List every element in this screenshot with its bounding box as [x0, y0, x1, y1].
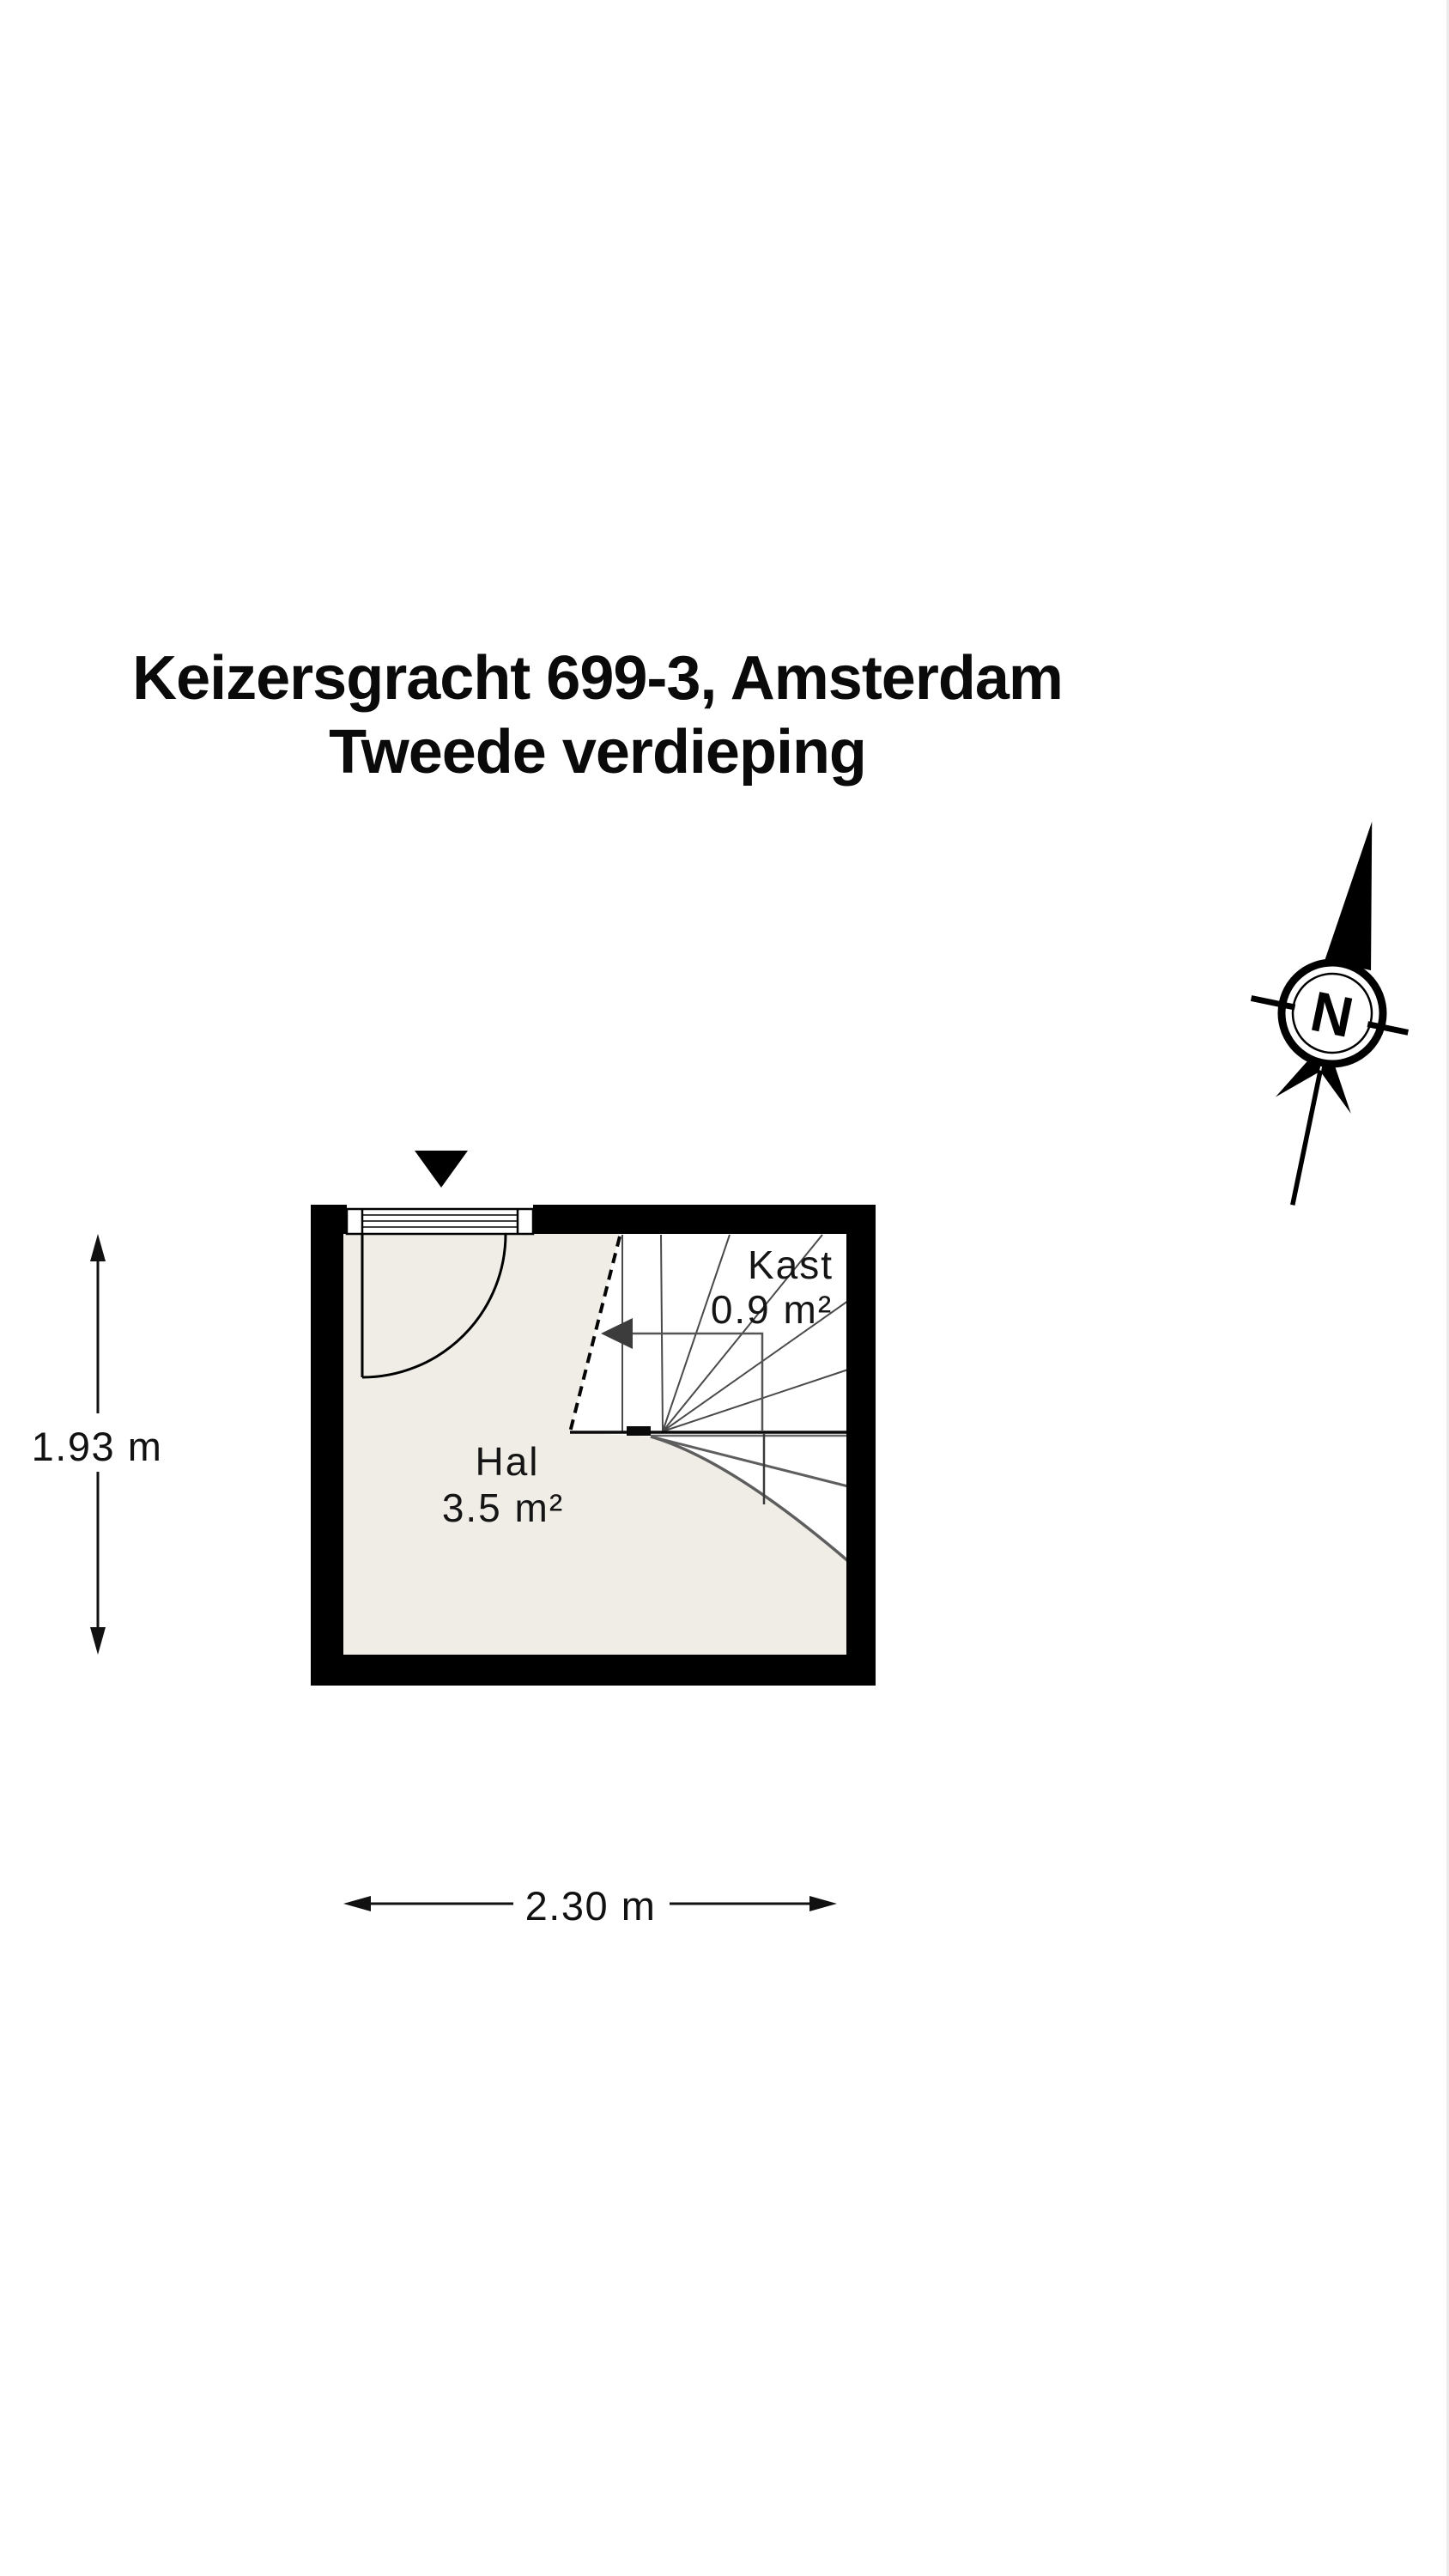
wall-top-right: [533, 1205, 876, 1234]
arrow-down-icon: [90, 1627, 106, 1655]
dimension-height-label: 1.93 m: [32, 1424, 163, 1469]
north-compass: N: [1212, 805, 1449, 1220]
entrance-arrow-icon: [415, 1151, 468, 1188]
wall-left: [311, 1205, 343, 1686]
room-name-hal: Hal: [475, 1439, 539, 1484]
room-area-kast: 0.9 m²: [711, 1287, 833, 1332]
floorplan-page: Keizersgracht 699-3, Amsterdam Tweede ve…: [0, 0, 1449, 2576]
dimension-height: 1.93 m: [32, 1234, 163, 1655]
arrow-right-icon: [809, 1896, 837, 1911]
room-name-kast: Kast: [748, 1242, 834, 1287]
floorplan-drawing: Hal 3.5 m² Kast 0.9 m² 1.93 m 2.30 m: [0, 0, 1449, 2576]
dimension-width: 2.30 m: [343, 1883, 837, 1929]
compass-tail: [1293, 1071, 1320, 1206]
compass-needle-icon: [1325, 817, 1400, 970]
wall-bottom: [311, 1655, 876, 1686]
landing-edge-stub: [627, 1426, 651, 1436]
dimension-width-label: 2.30 m: [525, 1883, 657, 1929]
room-area-hal: 3.5 m²: [442, 1485, 564, 1530]
arrow-left-icon: [343, 1896, 371, 1911]
wall-right: [846, 1205, 876, 1686]
arrow-up-icon: [90, 1234, 106, 1261]
